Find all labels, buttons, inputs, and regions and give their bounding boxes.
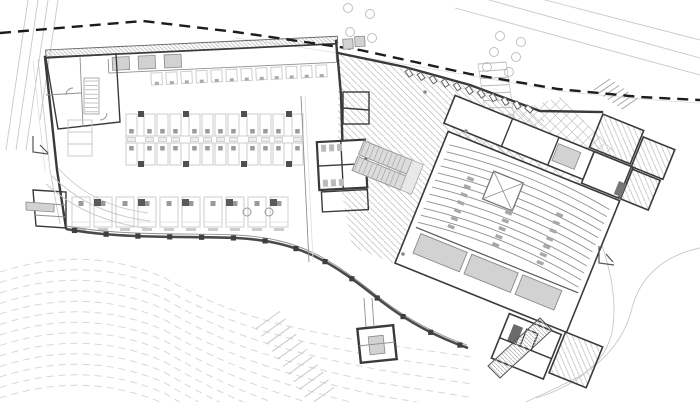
- bench: [120, 228, 130, 231]
- chair: [320, 74, 324, 77]
- service-counters: [112, 54, 182, 70]
- column: [182, 199, 189, 206]
- facade-column: [231, 235, 236, 240]
- desk-grid: [126, 111, 303, 167]
- facade-column: [263, 238, 268, 243]
- entrance-gates: [343, 36, 366, 49]
- fixture: [339, 179, 344, 186]
- fixture: [321, 145, 326, 152]
- chair: [305, 75, 309, 78]
- facade-column: [349, 276, 354, 281]
- stair-tread: [622, 98, 638, 109]
- contour-line: [0, 354, 472, 402]
- chair: [205, 146, 210, 151]
- chair: [147, 146, 152, 151]
- chair: [231, 129, 236, 134]
- chair: [276, 146, 281, 151]
- stair-tread: [599, 82, 615, 93]
- chair: [250, 146, 255, 151]
- chair: [173, 146, 178, 151]
- chair: [101, 201, 106, 206]
- chair: [167, 201, 172, 206]
- chair: [170, 81, 174, 84]
- chair: [263, 129, 268, 134]
- chair: [290, 75, 294, 78]
- stair-shaft: [84, 78, 99, 114]
- chair: [160, 129, 165, 134]
- core-wall: [301, 96, 309, 262]
- column: [241, 111, 247, 117]
- floor-plan-page: [0, 0, 700, 402]
- tree: [490, 48, 499, 57]
- column: [226, 199, 233, 206]
- chair: [192, 146, 197, 151]
- road-line: [545, 0, 700, 40]
- shelf: [230, 138, 238, 142]
- contour-line: [0, 375, 472, 402]
- column: [270, 199, 277, 206]
- chair: [200, 80, 204, 83]
- chair: [129, 146, 134, 151]
- road-line: [6, 0, 28, 150]
- chair: [263, 146, 268, 151]
- contour-line: [0, 322, 472, 402]
- chair: [185, 80, 189, 83]
- shelf: [159, 138, 167, 142]
- column: [183, 161, 189, 167]
- chair: [211, 201, 216, 206]
- tree: [366, 10, 375, 19]
- bollard-dot: [423, 90, 427, 94]
- bollard-dot: [401, 252, 405, 256]
- tree: [368, 34, 377, 43]
- tree: [517, 38, 526, 47]
- shelf: [146, 138, 154, 142]
- shelf: [191, 138, 199, 142]
- contour-line: [0, 259, 472, 357]
- contour-line: [0, 364, 472, 402]
- chair: [275, 76, 279, 79]
- bench: [252, 228, 262, 231]
- column: [183, 111, 189, 117]
- chair: [250, 129, 255, 134]
- chair: [295, 129, 300, 134]
- shelf: [275, 138, 283, 142]
- chair: [79, 201, 84, 206]
- facade-column: [104, 232, 109, 237]
- chair: [129, 129, 134, 134]
- road-line: [489, 0, 700, 58]
- chair: [173, 129, 178, 134]
- chair: [233, 201, 238, 206]
- gate-booth: [355, 36, 366, 47]
- floor-plan-canvas: [0, 0, 700, 402]
- bench: [164, 228, 174, 231]
- bench: [230, 228, 240, 231]
- column: [94, 199, 101, 206]
- tree: [505, 68, 514, 77]
- south-desk-row: [72, 197, 288, 231]
- chair: [189, 201, 194, 206]
- chair: [155, 82, 159, 85]
- chair: [218, 146, 223, 151]
- chair: [295, 146, 300, 151]
- column: [138, 111, 144, 117]
- level-marker: [33, 136, 48, 154]
- chair: [260, 77, 264, 80]
- facade-column: [375, 295, 380, 300]
- top-table-row: [151, 65, 327, 85]
- facade-column: [293, 246, 298, 251]
- chair: [147, 129, 152, 134]
- gate-booth: [343, 39, 354, 50]
- facade-column: [400, 314, 405, 319]
- core-wall-inner: [305, 96, 313, 260]
- facade-column: [322, 259, 327, 264]
- west-wall: [45, 57, 66, 228]
- tree: [346, 28, 355, 37]
- facade-column: [167, 234, 172, 239]
- column: [286, 111, 292, 117]
- chair: [276, 129, 281, 134]
- column: [241, 161, 247, 167]
- bench: [186, 228, 196, 231]
- bench: [142, 228, 152, 231]
- ramp-pad: [26, 202, 54, 212]
- road-line: [26, 0, 48, 150]
- chair: [123, 201, 128, 206]
- service-counter: [112, 57, 130, 71]
- terrain-steps: [256, 311, 334, 402]
- road-line: [455, 8, 700, 75]
- shelf: [294, 138, 302, 142]
- facade-column: [428, 330, 433, 335]
- facade-column: [457, 342, 462, 347]
- service-counter: [138, 55, 156, 69]
- shelf: [204, 138, 212, 142]
- chair: [160, 146, 165, 151]
- shelf: [172, 138, 180, 142]
- bench: [208, 228, 218, 231]
- bollard-dot: [464, 129, 468, 133]
- bench: [274, 228, 284, 231]
- fixture: [331, 179, 336, 186]
- facade-column: [199, 235, 204, 240]
- service-counter: [164, 54, 182, 68]
- shelf: [262, 138, 270, 142]
- tree: [512, 53, 521, 62]
- contour-line: [0, 312, 472, 402]
- shelf: [249, 138, 257, 142]
- west-sidewalk-outer: [33, 61, 45, 171]
- chair: [255, 201, 260, 206]
- stair-tread: [478, 62, 506, 64]
- column: [138, 199, 145, 206]
- chair: [218, 129, 223, 134]
- level-marker: [599, 246, 614, 265]
- tree: [496, 32, 505, 41]
- tree: [344, 4, 353, 13]
- shelf: [128, 138, 136, 142]
- cell: [68, 144, 92, 156]
- chair: [205, 129, 210, 134]
- site-contours: [0, 259, 472, 402]
- facade-column: [72, 228, 77, 233]
- shelf: [217, 138, 225, 142]
- chair: [192, 129, 197, 134]
- chair: [231, 146, 236, 151]
- column: [138, 161, 144, 167]
- chair: [215, 79, 219, 82]
- fixture: [329, 144, 334, 151]
- contour-line: [0, 270, 472, 371]
- cell: [68, 132, 92, 144]
- detached-stair-structure: [357, 325, 396, 363]
- facade-column: [135, 234, 140, 239]
- column: [286, 161, 292, 167]
- contour-line: [0, 385, 472, 402]
- contour-line: [0, 343, 472, 402]
- connecting-corridor: [364, 298, 374, 327]
- fixture: [323, 180, 328, 187]
- chair: [277, 201, 282, 206]
- fixture: [337, 144, 342, 151]
- stair-tread: [481, 85, 509, 86]
- stair-tread: [594, 79, 610, 90]
- chair: [245, 77, 249, 80]
- contour-line: [0, 291, 472, 398]
- contour-line: [0, 280, 472, 384]
- chair: [230, 78, 234, 81]
- chair: [145, 201, 150, 206]
